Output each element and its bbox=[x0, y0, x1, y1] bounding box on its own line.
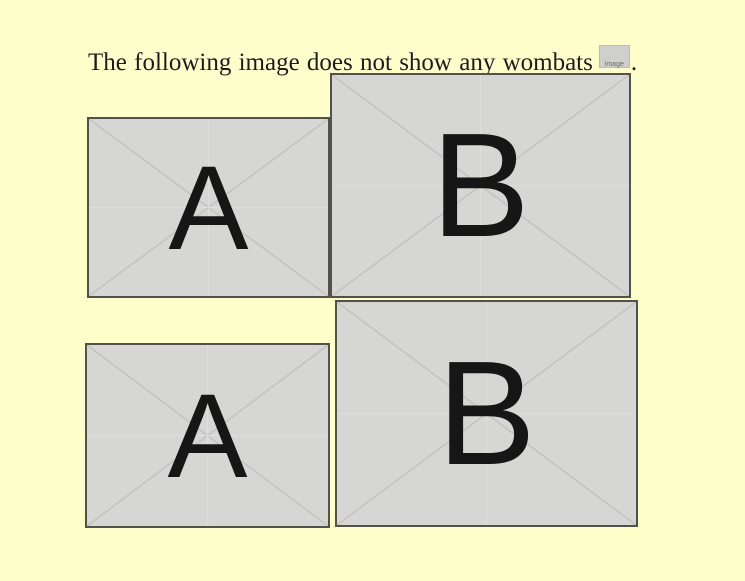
question-text-period: . bbox=[631, 49, 637, 76]
placeholder-letter: A bbox=[167, 376, 247, 496]
example-image-b-bottom: B bbox=[335, 300, 638, 527]
broken-image-icon: image bbox=[599, 45, 630, 68]
question-text: The following image does not show any wo… bbox=[88, 45, 637, 75]
placeholder-letter: B bbox=[437, 340, 536, 488]
broken-image-icon-label: image bbox=[605, 54, 624, 75]
placeholder-letter: B bbox=[431, 112, 530, 260]
question-text-body: The following image does not show any wo… bbox=[88, 49, 593, 76]
example-image-b-top: B bbox=[330, 73, 631, 298]
example-image-a-top: A bbox=[87, 117, 330, 298]
placeholder-letter: A bbox=[168, 148, 248, 268]
example-image-a-bottom: A bbox=[85, 343, 330, 528]
